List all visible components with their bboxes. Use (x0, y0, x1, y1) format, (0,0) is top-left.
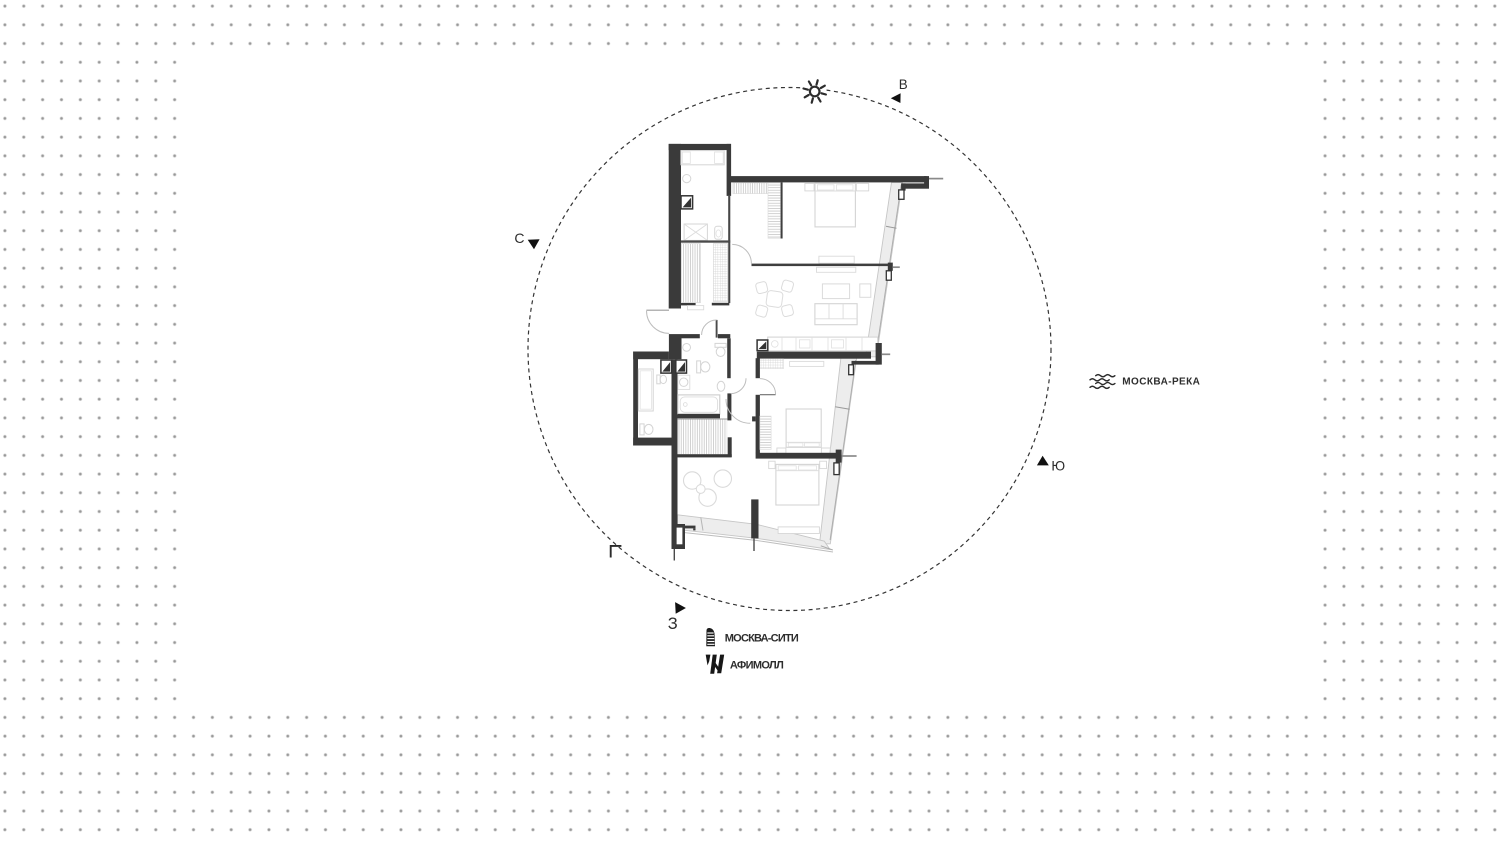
svg-text:С: С (514, 230, 524, 246)
svg-text:В: В (899, 77, 908, 92)
svg-text:Ю: Ю (1051, 458, 1065, 473)
svg-text:МОСКВА-СИТИ: МОСКВА-СИТИ (725, 632, 800, 644)
svg-text:МОСКВА-РЕКА: МОСКВА-РЕКА (1122, 377, 1200, 388)
svg-text:З: З (668, 615, 678, 633)
svg-text:АФИМОЛЛ: АФИМОЛЛ (730, 659, 785, 671)
